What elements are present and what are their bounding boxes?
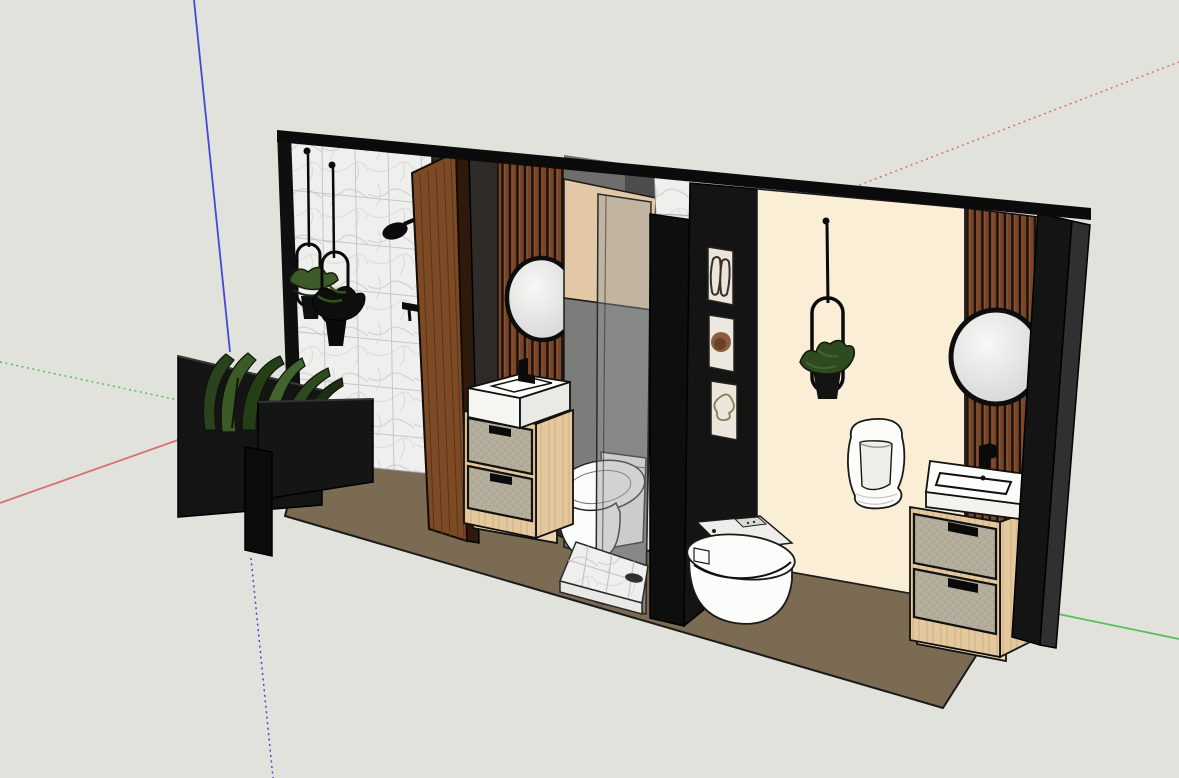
planter-front-ledge: [258, 399, 373, 500]
urinal[interactable]: [848, 419, 904, 508]
vanity-left[interactable]: [464, 358, 573, 543]
viewport-canvas[interactable]: [0, 0, 1179, 778]
art-frame-middle[interactable]: [709, 315, 734, 372]
art-frame-top[interactable]: [708, 247, 733, 305]
model-view[interactable]: [0, 0, 1179, 778]
toilet-side-vent: [694, 548, 709, 564]
planter-front-post: [245, 447, 272, 556]
art-frame-bottom[interactable]: [711, 381, 737, 440]
